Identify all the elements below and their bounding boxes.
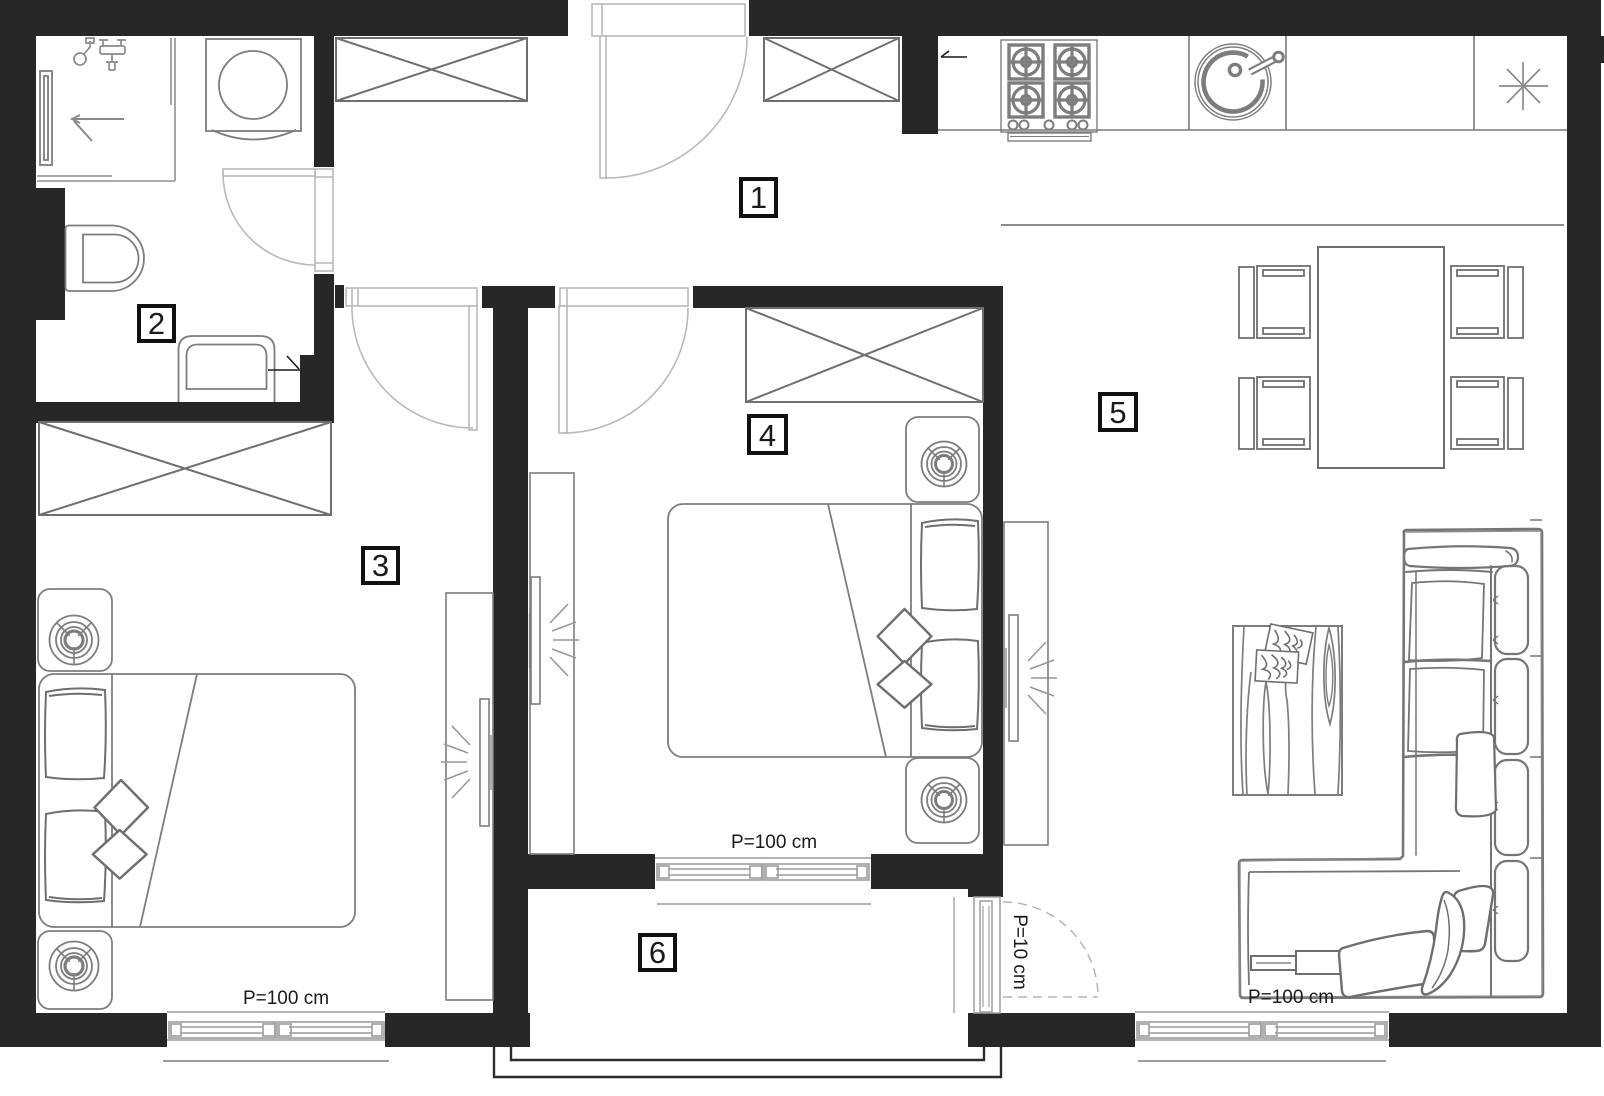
svg-text:1: 1 — [750, 180, 767, 215]
svg-text:P=100 cm: P=100 cm — [731, 832, 817, 853]
svg-text:P=100 cm: P=100 cm — [1248, 987, 1334, 1008]
svg-text:P=10 cm: P=10 cm — [1009, 914, 1030, 990]
svg-text:4: 4 — [759, 418, 776, 453]
svg-text:3: 3 — [372, 548, 389, 583]
svg-text:6: 6 — [649, 935, 666, 970]
svg-text:5: 5 — [1109, 395, 1126, 430]
svg-text:2: 2 — [148, 306, 165, 341]
svg-text:P=100 cm: P=100 cm — [243, 988, 329, 1009]
